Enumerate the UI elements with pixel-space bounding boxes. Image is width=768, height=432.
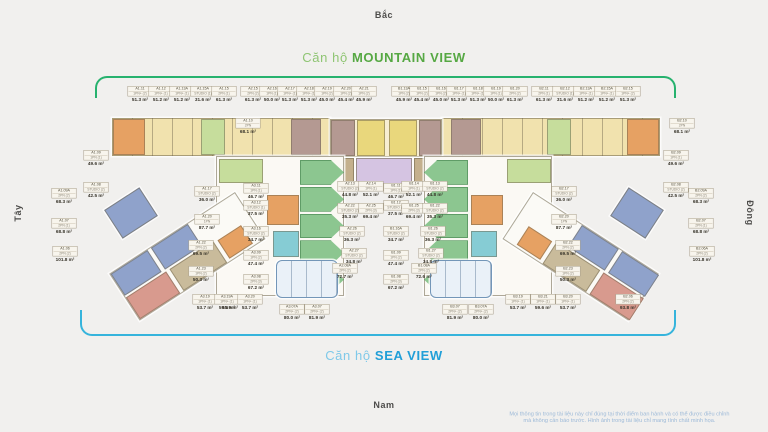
- compass-west: Tây: [13, 199, 23, 227]
- tower-b-spine-orange-unit: [471, 195, 503, 225]
- tower-a-top-bar-mauve-unit: [291, 119, 321, 155]
- mountain-view-name: MOUNTAIN VIEW: [352, 50, 466, 65]
- sea-view-bracket: [80, 310, 676, 336]
- tower-a-top-bar-green-unit: [201, 119, 225, 155]
- tower-a-spine-green-unit: [219, 159, 263, 183]
- sea-view-name: SEA VIEW: [375, 348, 443, 363]
- floor-plan-page: Bắc Nam Tây Đông Căn hộ MOUNTAIN VIEW Că…: [0, 0, 768, 432]
- disclaimer-text: Mọi thông tin trong tài liệu này chỉ đún…: [477, 410, 762, 424]
- connector-yellow-left: [357, 120, 385, 156]
- connector-yellow-right: [389, 120, 417, 156]
- center-connector-block: [330, 119, 442, 157]
- tower-b-spine-green-unit: [507, 159, 551, 183]
- compass-south: Nam: [0, 400, 768, 410]
- core-lavender-block: [356, 158, 412, 188]
- disclaimer-line-1: Mọi thông tin trong tài liệu này chỉ đún…: [477, 410, 762, 417]
- mountain-view-prefix: Căn hộ: [302, 50, 352, 65]
- tower-b-top-bar-mauve-unit: [451, 119, 481, 155]
- mountain-view-title: Căn hộ MOUNTAIN VIEW: [0, 50, 768, 65]
- tower-b-spine-teal-unit: [471, 231, 497, 257]
- tower-a-sea-block: [276, 260, 338, 298]
- compass-north: Bắc: [0, 10, 768, 20]
- wing-a-detached-blue-block: [104, 187, 158, 238]
- tower-b-top-bar-green-unit: [547, 119, 571, 155]
- connector-mauve-left: [331, 120, 355, 156]
- sea-view-prefix: Căn hộ: [325, 348, 375, 363]
- tower-b-top-bar: [442, 118, 660, 156]
- tower-a-spine-teal-unit: [273, 231, 299, 257]
- sea-view-title: Căn hộ SEA VIEW: [0, 348, 768, 363]
- tower-b-sea-block: [430, 260, 492, 298]
- compass-east: Đông: [745, 199, 755, 227]
- tower-a-top-bar-orange-unit: [113, 119, 145, 155]
- tower-b-top-bar-orange-unit: [627, 119, 659, 155]
- disclaimer-line-2: mà không cần báo trước. Hình ảnh trong t…: [477, 417, 762, 424]
- tower-a-top-bar: [112, 118, 330, 156]
- connector-mauve-right: [419, 120, 441, 156]
- mountain-view-bracket: [95, 76, 676, 98]
- tower-a-spine-orange-unit: [267, 195, 299, 225]
- wing-b-detached-blue-block: [610, 187, 664, 238]
